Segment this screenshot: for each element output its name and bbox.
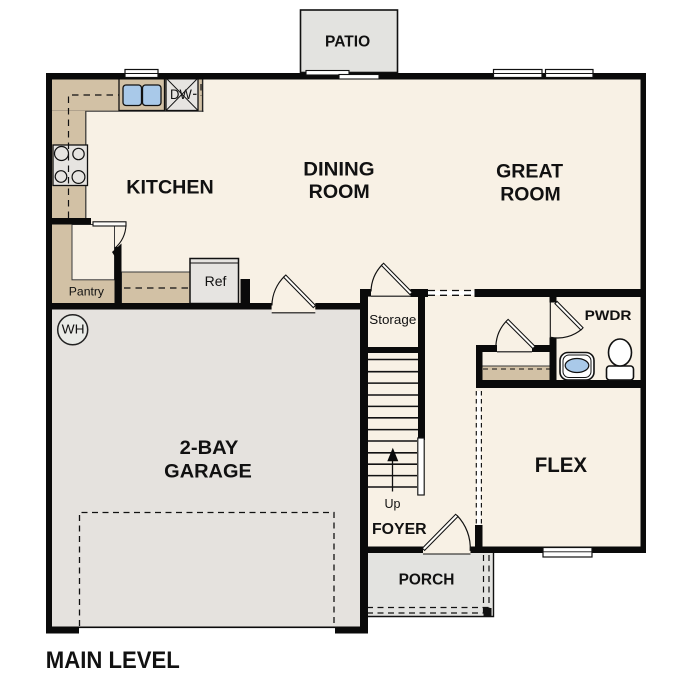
svg-text:PATIO: PATIO	[325, 34, 370, 51]
svg-text:Pantry: Pantry	[69, 285, 104, 299]
svg-text:FOYER: FOYER	[372, 521, 427, 538]
svg-text:KITCHEN: KITCHEN	[126, 177, 214, 199]
svg-text:GREAT: GREAT	[496, 161, 563, 183]
svg-text:DW: DW	[170, 87, 192, 102]
svg-text:ROOM: ROOM	[309, 181, 370, 203]
svg-text:Up: Up	[385, 497, 401, 511]
svg-text:GARAGE: GARAGE	[164, 461, 252, 483]
svg-text:Ref: Ref	[205, 273, 227, 289]
svg-text:WH: WH	[62, 322, 85, 337]
svg-text:MAIN LEVEL: MAIN LEVEL	[46, 647, 180, 674]
svg-text:DINING: DINING	[303, 158, 374, 180]
svg-text:PWDR: PWDR	[585, 307, 632, 323]
svg-text:ROOM: ROOM	[500, 183, 561, 205]
svg-text:PORCH: PORCH	[399, 571, 455, 588]
svg-text:2-BAY: 2-BAY	[180, 437, 239, 459]
svg-text:Storage: Storage	[369, 312, 416, 327]
svg-text:FLEX: FLEX	[535, 454, 587, 477]
